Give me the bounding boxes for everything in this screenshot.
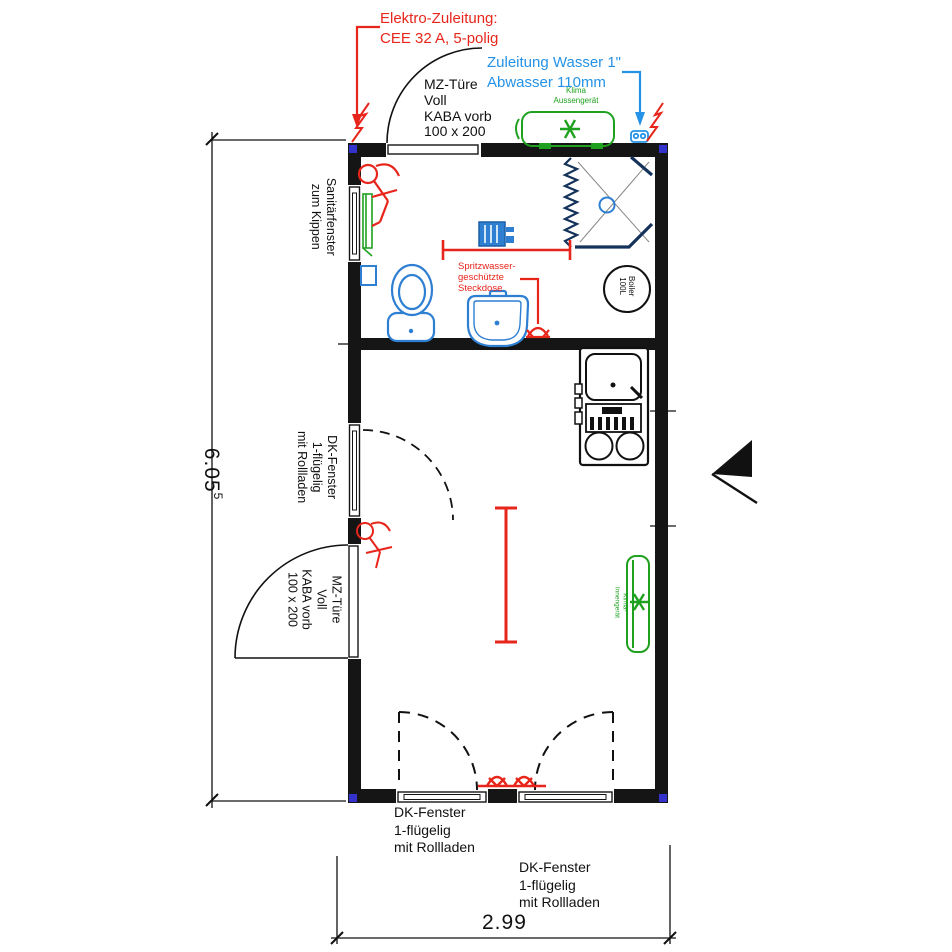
kitchenette-symbol (575, 348, 648, 465)
dk-fenster-bottom-right-label: DK-Fenster 1-flügelig mit Rollladen (519, 859, 600, 912)
corner-casting-marks (349, 145, 667, 802)
height-superscript: 5 (211, 493, 225, 501)
main-room-window-arc (363, 430, 453, 520)
elektro-leader (352, 27, 380, 142)
klima-innengeraet-label: Klima- Innengerät (612, 573, 629, 631)
sanitaerfenster-label: Sanitärfenster zum Kippen (308, 167, 338, 267)
water-connection-icon (631, 131, 648, 142)
red-heater-marker (495, 508, 517, 642)
floor-plan: Elektro-Zuleitung: CEE 32 A, 5-polig Zul… (0, 0, 952, 952)
electric-heater-symbol (479, 222, 514, 246)
boiler-label: Boiler 100L (618, 264, 636, 308)
mz-tuere-left-label: MZ-Türe Voll KABA vorb 100 x 200 (285, 561, 344, 639)
dk-window-bottom-right (517, 789, 614, 804)
figure-symbol-icon-bath (359, 164, 399, 226)
sanitary-window (346, 185, 363, 262)
tilt-window-symbol (363, 194, 372, 256)
electric-flash-icon (647, 103, 663, 141)
steckdose-label: Spritzwasser- geschützte Steckdose (458, 262, 516, 295)
floorplan-canvas (0, 0, 952, 952)
height-value: 6.05 (200, 448, 223, 493)
shower-symbol (565, 157, 652, 247)
dk-fenster-left-label: DK-Fenster 1-flügelig mit Rollladen (295, 417, 339, 517)
electric-flash-icon (352, 103, 369, 142)
toilet-symbol (388, 265, 434, 341)
klima-outdoor-unit (516, 112, 614, 148)
flush-panel-symbol (361, 266, 376, 285)
asterisk-fan-icon (560, 120, 580, 138)
entrance-arrow-icon (712, 440, 757, 503)
klima-indoor-unit (627, 556, 649, 652)
width-dimension-value: 2.99 (482, 911, 527, 936)
wasser-leader (622, 72, 663, 142)
dk-window-left (346, 423, 363, 518)
dk-fenster-bottom-left-label: DK-Fenster 1-flügelig mit Rollladen (394, 804, 475, 857)
elektro-zuleitung-label: Elektro-Zuleitung: CEE 32 A, 5-polig (380, 9, 498, 50)
height-dimension-value: 6.055 (198, 448, 250, 524)
dk-window-bottom-left (396, 789, 488, 804)
klima-aussengeraet-label: Klima Aussengerät (532, 86, 620, 106)
mz-tuere-top-label: MZ-Türe Voll KABA vorb 100 x 200 (424, 77, 492, 140)
washbasin-symbol (468, 291, 528, 346)
bottom-window-swing-arcs (399, 712, 613, 790)
